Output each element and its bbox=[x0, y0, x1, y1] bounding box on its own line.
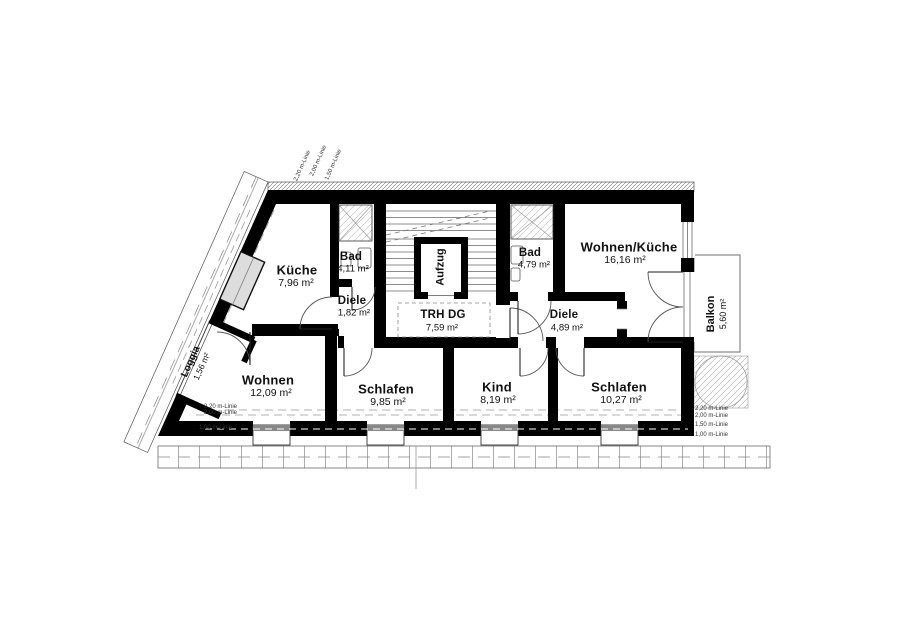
room-area-trh: 7,59 m² bbox=[426, 323, 458, 334]
room-label-bad-b: Bad bbox=[519, 247, 541, 259]
room-label-balkon: Balkon 5,60 m² bbox=[705, 296, 729, 333]
room-area-diele-a: 1,82 m² bbox=[338, 308, 370, 319]
height-line-label-left-2: 2,00 m-Linie bbox=[204, 410, 237, 416]
height-line-label-right-4: 1,00 m-Linie bbox=[695, 432, 728, 438]
room-label-wohnen: Wohnen bbox=[242, 373, 294, 388]
room-area-wohnen: 12,09 m² bbox=[250, 387, 291, 399]
room-area-schlafen-b: 10,27 m² bbox=[600, 394, 641, 406]
room-area-schlafen-a: 9,85 m² bbox=[370, 396, 406, 408]
room-label-kind: Kind bbox=[482, 380, 512, 395]
room-label-kueche: Küche bbox=[277, 263, 318, 278]
room-label-trh: TRH DG bbox=[420, 309, 465, 321]
room-label-diele-a: Diele bbox=[338, 295, 367, 307]
room-label-diele-b: Diele bbox=[550, 309, 579, 321]
right-wall-window bbox=[680, 222, 695, 258]
room-area-diele-b: 4,89 m² bbox=[551, 323, 583, 334]
room-area-bad-a: 4,11 m² bbox=[337, 264, 369, 275]
bottom-eaves-band bbox=[158, 446, 770, 489]
room-label-schlafen-a: Schlafen bbox=[358, 382, 414, 397]
room-area-kind: 8,19 m² bbox=[480, 394, 516, 406]
height-line-label-right-3: 1,50 m-Linie bbox=[695, 422, 728, 428]
height-line-label-left-3: 1,00 m-Linie bbox=[199, 425, 232, 431]
room-label-aufzug: Aufzug bbox=[434, 248, 447, 285]
height-line-label-right-1: 2,20 m-Linie bbox=[695, 406, 728, 412]
room-label-schlafen-b: Schlafen bbox=[591, 380, 647, 395]
shower-bad-b bbox=[511, 205, 553, 239]
height-line-label-right-2: 2,00 m-Linie bbox=[695, 413, 728, 419]
room-label-wohnen-kueche: Wohnen/Küche bbox=[581, 240, 678, 255]
room-area-wohnen-kueche: 16,16 m² bbox=[604, 254, 645, 266]
room-area-kueche: 7,96 m² bbox=[278, 277, 314, 289]
tree-hatch-area bbox=[694, 356, 748, 408]
room-label-bad-a: Bad bbox=[340, 251, 362, 263]
room-area-bad-b: 4,79 m² bbox=[518, 260, 550, 271]
floorplan-page: Küche 7,96 m² Bad 4,11 m² Diele 1,82 m² … bbox=[0, 0, 900, 636]
shower-bad-a bbox=[339, 205, 372, 241]
